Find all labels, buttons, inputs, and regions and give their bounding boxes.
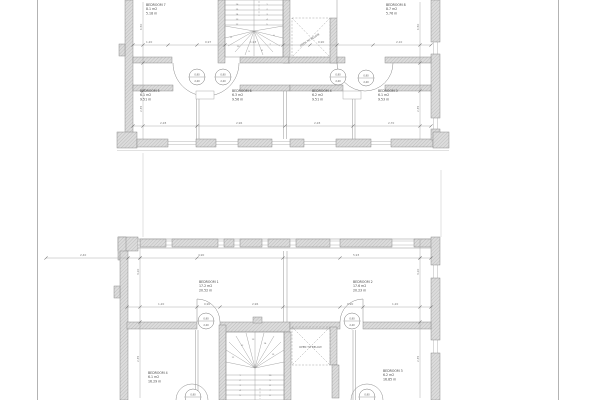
drawing-sheet: OPEN TO BELOW BEDROOM 78.1 m25.18 mBEDRO… — [0, 0, 600, 400]
dimension-label: 2,35 — [416, 356, 420, 362]
dimension-label: 1,50 — [416, 24, 420, 30]
door-marker-top-value: 0,90 — [220, 74, 226, 77]
dimension-label: 2,10 — [396, 40, 402, 44]
dimension-label: 0,90 — [318, 40, 324, 44]
dimension-label: 1,50 — [139, 24, 143, 30]
dimension-label: 2,96 — [236, 121, 242, 125]
door-marker-bottom-value: 2,20 — [363, 81, 369, 84]
dimension-label: 2,28 — [314, 121, 320, 125]
door-marker-top-value: 0,90 — [194, 74, 200, 77]
dimension-label: 0,97 — [205, 40, 211, 44]
dimension-label: 0,90 — [347, 302, 353, 306]
dimension-label: 1,93 — [250, 40, 256, 44]
dimension-label: 0,90 — [204, 302, 210, 306]
door-marker-top-value: 0,90 — [363, 75, 369, 78]
dimension-label: 1,20 — [146, 40, 152, 44]
door-marker-top-value: 0,90 — [335, 74, 341, 77]
dimension-label: 1,20 — [158, 302, 164, 306]
dimension-label: 2,28 — [160, 121, 166, 125]
dimension-label: 4,90 — [198, 253, 204, 257]
door-marker-top-value: 0,90 — [203, 318, 209, 321]
door-marker-bottom-value: 2,20 — [349, 324, 355, 327]
lower-void-label: OPEN TO BELOW — [299, 345, 322, 349]
dimension-label: 2,35 — [139, 106, 143, 112]
door-marker-bottom-value: 2,20 — [194, 80, 200, 83]
door-marker-bottom-value: 2,20 — [220, 80, 226, 83]
dimension-label: 2,96 — [252, 302, 258, 306]
door-marker-top-value: 0,90 — [364, 394, 370, 397]
dimension-label: 2,35 — [136, 356, 140, 362]
floor-plan-canvas: OPEN TO BELOW BEDROOM 78.1 m25.18 mBEDRO… — [0, 0, 600, 400]
door-marker-bottom-value: 2,20 — [335, 80, 341, 83]
dimension-label: 1,20 — [392, 302, 398, 306]
dimension-label: 2,70 — [388, 121, 394, 125]
door-marker-top-value: 0,90 — [190, 394, 196, 397]
dimension-label: 3,20 — [136, 269, 140, 275]
dimension-label: 3,20 — [416, 269, 420, 275]
door-marker-top-value: 0,90 — [349, 318, 355, 321]
dimension-label: 5,93 — [353, 253, 359, 257]
dimension-label: 2,40 — [80, 253, 86, 257]
door-marker-bottom-value: 2,20 — [203, 324, 209, 327]
dimension-label: 2,35 — [416, 106, 420, 112]
